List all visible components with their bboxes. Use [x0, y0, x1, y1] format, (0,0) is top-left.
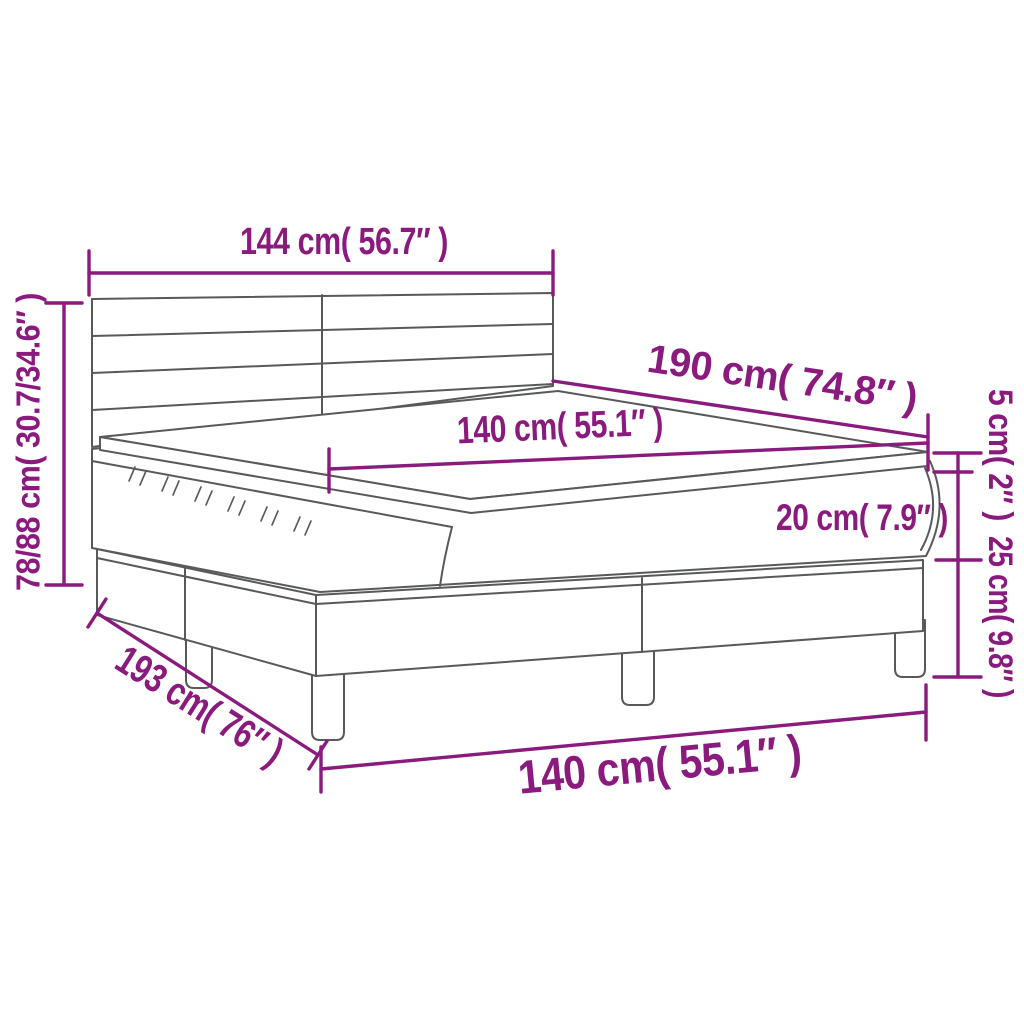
- dim-right-heights: [934, 453, 981, 677]
- dim-headboard-width-label: 144 cm( 56.7″ ): [240, 221, 448, 263]
- dim-base-height-label: 25 cm( 9.8″ ): [981, 536, 1019, 698]
- dim-mattress-height-label: 20 cm( 7.9″ ): [776, 497, 948, 538]
- dim-mattress-width-label: 140 cm( 55.1″ ): [456, 402, 664, 453]
- bed-leg: [622, 645, 654, 705]
- dim-topper-height-label: 5 cm( 2″ ): [981, 389, 1019, 521]
- dim-overall-height: [46, 303, 82, 585]
- bed-diagram-canvas: 144 cm( 56.7″ ) 78/88 cm( 30.7/34.6″ ) 1…: [0, 0, 1024, 1024]
- dim-overall-height-label: 78/88 cm( 30.7/34.6″ ): [10, 293, 47, 591]
- product-dimension-diagram: 144 cm( 56.7″ ) 78/88 cm( 30.7/34.6″ ) 1…: [0, 0, 1024, 1024]
- dim-length-top-label: 190 cm( 74.8″ ): [645, 337, 921, 421]
